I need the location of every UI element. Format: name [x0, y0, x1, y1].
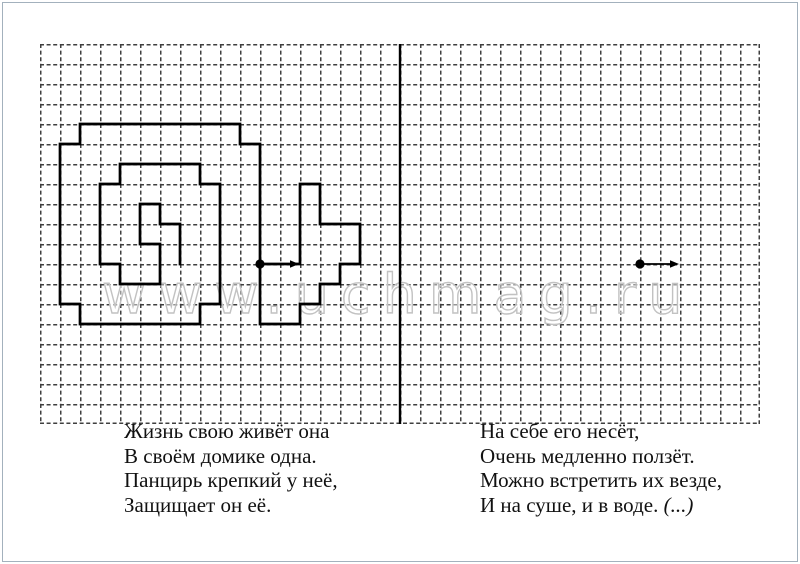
riddle-left-line-1: Жизнь свою живёт она — [124, 419, 338, 444]
riddle-left: Жизнь свою живёт она В своём домике одна… — [124, 419, 338, 517]
riddle-left-line-4: Защищает он её. — [124, 493, 338, 518]
worksheet-page: www.uchmag.ru Жизнь свою живёт она В сво… — [0, 0, 800, 564]
riddle-right-line-4: И на суше, и в воде. (...) — [480, 493, 722, 518]
riddle-right-line-3: Можно встретить их везде, — [480, 468, 722, 493]
riddle-right-line-1: На себе его несёт, — [480, 419, 722, 444]
right-start-dot — [635, 259, 644, 268]
answer-hint: (...) — [664, 493, 694, 517]
riddle-left-line-2: В своём домике одна. — [124, 444, 338, 469]
watermark-text: www.uchmag.ru — [102, 263, 694, 326]
riddle-right-line-4-text: И на суше, и в воде. — [480, 493, 658, 517]
riddle-left-line-3: Панцирь крепкий у неё, — [124, 468, 338, 493]
riddle-right: На себе его несёт, Очень медленно ползёт… — [480, 419, 722, 517]
riddle-right-line-2: Очень медленно ползёт. — [480, 444, 722, 469]
left-start-dot — [255, 259, 264, 268]
